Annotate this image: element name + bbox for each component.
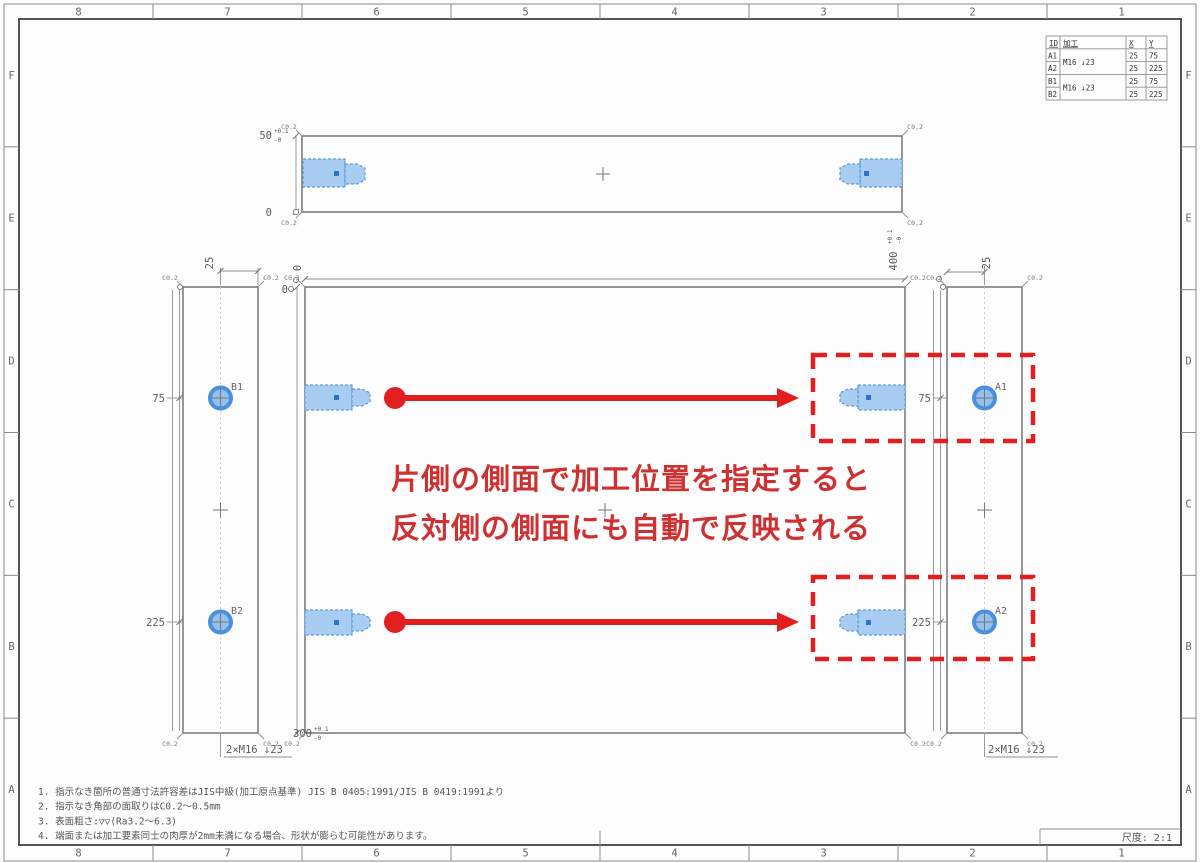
zone-label-row: E (8, 213, 14, 225)
table-header-x: X (1129, 39, 1134, 48)
dim-225: 225 (912, 617, 931, 629)
hole-b2[interactable] (210, 612, 231, 633)
right-side-view: 25 75 225 A1 A2 2×M16 ↓23 (912, 257, 1058, 757)
table-cell-machining-b: M16 ↓23 (1063, 84, 1095, 93)
zone-label-col: 6 (373, 7, 379, 19)
table-header-y: Y (1149, 39, 1154, 48)
dim-width-tol-lower: -0 (896, 236, 903, 244)
table-cell-y: 225 (1149, 64, 1163, 73)
zone-label-col: 1 (1118, 7, 1124, 19)
zone-label-col: 7 (224, 848, 230, 860)
table-cell-id: B1 (1048, 77, 1057, 86)
chamfer-label: C0.2 (907, 123, 923, 131)
zone-label-row: F (8, 70, 14, 82)
chamfer-leader (177, 733, 183, 739)
table-cell-x: 25 (1129, 77, 1138, 86)
thread-center-marker (334, 395, 339, 400)
scale-label: 尺度: 2:1 (1122, 831, 1172, 844)
zone-label-col: 6 (373, 848, 379, 860)
chamfer-label: C0.2 (926, 274, 942, 282)
chamfer-leader (1022, 733, 1028, 739)
dim-y-zero: 0 (282, 284, 288, 296)
center-cross (977, 503, 992, 518)
zone-label-col: 8 (75, 848, 81, 860)
dim-75: 75 (918, 393, 931, 405)
arrow-dot-1 (384, 387, 406, 409)
table-cell-id: A1 (1048, 51, 1057, 60)
highlighted-hole-feature-front-a1[interactable] (840, 385, 905, 410)
table-cell-x: 25 (1129, 64, 1138, 73)
chamfer-label: C0.2 (910, 740, 926, 748)
chamfer-label: C0.2 (1027, 740, 1043, 748)
zone-label-row: C (1185, 498, 1191, 510)
hole-label-b2: B2 (231, 606, 243, 617)
center-cross (596, 167, 610, 181)
dim-75: 75 (152, 393, 165, 405)
chamfer-label: C0.2 (1027, 274, 1043, 282)
table-cell-y: 75 (1149, 77, 1158, 86)
machining-table: ID 加工 X Y A1 25 75 A2 25 225 B1 25 75 B2… (1046, 36, 1167, 100)
dim-thickness-tol-lower: -0 (274, 137, 282, 144)
table-cell-y: 225 (1149, 90, 1163, 99)
dim-zero: 0 (266, 207, 272, 219)
hole-label-b1: B1 (231, 382, 243, 393)
dim-height-tol-upper: +0.1 (314, 726, 329, 733)
datum-origin-marker (289, 287, 294, 292)
drawing-canvas: 8877665544332211FFEEDDCCBBAA ID 加工 X Y A… (0, 0, 1200, 863)
chamfer-label: C0.2 (281, 123, 297, 131)
zone-label-col: 1 (1118, 848, 1124, 860)
chamfer-label: C0.2 (907, 219, 923, 227)
table-cell-id: B2 (1048, 90, 1057, 99)
chamfer-leader (905, 733, 911, 739)
callout-text-line2: 反対側の側面にも自動で反映される (391, 511, 871, 545)
thread-center-marker (866, 620, 871, 625)
hole-a1[interactable] (974, 388, 995, 409)
zone-label-col: 3 (820, 848, 826, 860)
hole-label-a1: A1 (995, 382, 1007, 393)
center-cross (213, 503, 228, 518)
chamfer-label: C0.2 (910, 274, 926, 282)
inner-border (19, 19, 1181, 845)
zone-label-col: 4 (671, 7, 677, 19)
arrow-dot-2 (384, 611, 406, 633)
red-annotations: 片側の側面で加工位置を指定すると 反対側の側面にも自動で反映される (384, 355, 1033, 659)
zone-label-row: C (8, 498, 14, 510)
chamfer-label: C0.2 (263, 740, 279, 748)
dim-x-zero: 0 (292, 265, 304, 271)
zone-label-col: 4 (671, 848, 677, 860)
general-notes: 1. 指示なき箇所の普通寸法許容差はJIS中級(加工原点基準) JIS B 04… (38, 786, 504, 842)
zone-label-col: 5 (522, 7, 528, 19)
zone-label-row: B (8, 641, 14, 653)
table-cell-x: 25 (1129, 90, 1138, 99)
dim-height-tol-lower: -0 (314, 735, 322, 742)
zone-label-row: D (8, 356, 14, 368)
dim-width-tol-upper: +0.1 (887, 229, 894, 244)
chamfer-label: C0.2 (284, 740, 300, 748)
top-view: 50 +0.1 -0 0 (259, 128, 902, 219)
datum-origin-marker (294, 210, 299, 215)
chamfer-label: C0.2 (284, 274, 300, 282)
chamfer-callouts: C0.2C0.2C0.2C0.2C0.2C0.2C0.2C0.2C0.2C0.2… (162, 123, 1043, 748)
thread-center-marker (866, 395, 871, 400)
zone-label-col: 8 (75, 7, 81, 19)
zone-label-row: D (1185, 356, 1191, 368)
arrow-head-2 (777, 612, 799, 632)
hole-label-a2: A2 (995, 606, 1007, 617)
general-note: 3. 表面粗さ:▽▽(Ra3.2〜6.3) (38, 815, 177, 827)
dim-height: 300 (293, 728, 312, 740)
chamfer-label: C0.2 (162, 274, 178, 282)
dim-width-group: 400 +0.1 -0 (887, 229, 903, 270)
callout-text-line1: 片側の側面で加工位置を指定すると (391, 462, 871, 496)
zone-label-row: E (1185, 213, 1191, 225)
highlighted-hole-feature-top-right[interactable] (840, 159, 902, 187)
chamfer-leader (258, 733, 264, 739)
table-cell-x: 25 (1129, 51, 1138, 60)
thread-center-marker (334, 620, 339, 625)
dim-offset-25: 25 (981, 257, 993, 270)
title-block: 尺度: 2:1 (1040, 829, 1181, 845)
dim-offset-25: 25 (204, 257, 216, 270)
dim-225: 225 (146, 617, 165, 629)
chamfer-leader (941, 733, 947, 739)
general-note: 2. 指示なき角部の面取りはC0.2〜0.5mm (38, 801, 221, 813)
general-note: 4. 端面または加工要素同士の肉厚が2mm未満になる場合、形状が膨らむ可能性があ… (38, 830, 432, 842)
chamfer-label: C0.2 (162, 740, 178, 748)
highlighted-hole-feature-front-b2[interactable] (305, 610, 370, 635)
left-side-view: 25 75 225 B1 B2 2×M16 ↓23 (146, 257, 292, 757)
thread-center-marker (864, 171, 869, 176)
zone-label-row: A (8, 784, 15, 796)
chamfer-leader (902, 212, 908, 218)
table-header-id: ID (1049, 39, 1059, 48)
zone-label-row: F (1185, 70, 1191, 82)
highlighted-hole-feature-front-b1[interactable] (305, 385, 370, 410)
zone-label-col: 3 (820, 7, 826, 19)
zone-label-row: B (1185, 641, 1191, 653)
table-cell-machining-a: M16 ↓23 (1063, 58, 1095, 67)
general-note: 1. 指示なき箇所の普通寸法許容差はJIS中級(加工原点基準) JIS B 04… (38, 786, 504, 798)
dim-width: 400 (888, 252, 900, 271)
highlighted-hole-feature-top-left[interactable] (303, 159, 365, 187)
highlighted-hole-feature-front-a2[interactable] (840, 610, 905, 635)
thread-center-marker (334, 171, 339, 176)
chamfer-label: C0.2 (263, 274, 279, 282)
zone-label-col: 2 (969, 848, 975, 860)
cad-drawing-sheet: 8877665544332211FFEEDDCCBBAA ID 加工 X Y A… (0, 0, 1200, 863)
chamfer-label: C0.2 (926, 740, 942, 748)
dim-thickness: 50 (259, 130, 272, 142)
chamfer-label: C0.2 (281, 219, 297, 227)
zone-label-col: 5 (522, 848, 528, 860)
table-header-machining: 加工 (1063, 38, 1079, 48)
zone-label-row: A (1185, 784, 1192, 796)
table-cell-y: 75 (1149, 51, 1158, 60)
zone-label-col: 7 (224, 7, 230, 19)
table-cell-id: A2 (1048, 64, 1057, 73)
hole-b1[interactable] (210, 388, 231, 409)
zone-label-col: 2 (969, 7, 975, 19)
hole-a2[interactable] (974, 612, 995, 633)
arrow-head-1 (777, 388, 799, 408)
